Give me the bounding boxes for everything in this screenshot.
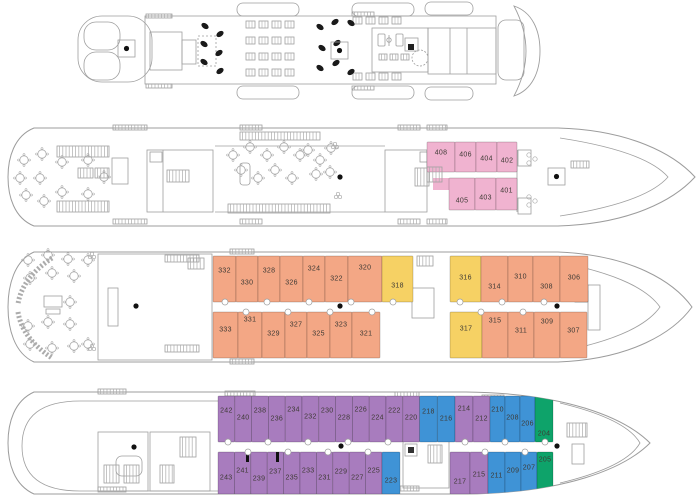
cabin-number: 329 (267, 331, 280, 338)
cabin-area[interactable] (508, 312, 534, 358)
structure (379, 17, 388, 24)
structure (392, 73, 401, 80)
structure (353, 17, 362, 24)
cabin-number: 401 (500, 188, 513, 195)
chair-icon (92, 159, 94, 161)
corridor-door-bump (522, 449, 528, 455)
chair-icon (314, 159, 316, 161)
outline-path (18, 258, 52, 304)
chair-icon (266, 159, 268, 161)
table-icon (229, 151, 237, 159)
cabin-number: 309 (541, 319, 554, 326)
cabin-number: 212 (475, 416, 488, 423)
chair-icon (42, 254, 44, 256)
cabin-number: 230 (321, 408, 334, 415)
chair-icon (271, 154, 273, 156)
cabin[interactable]: 404 (476, 142, 497, 172)
cabin-area[interactable] (258, 256, 280, 302)
structure (237, 3, 299, 16)
chair-icon (56, 347, 58, 349)
cabin[interactable]: 225 (366, 452, 382, 494)
cabin[interactable]: 212 (473, 396, 490, 442)
corridor-door-bump (457, 299, 463, 305)
table-icon (312, 170, 320, 178)
corridor-door-bump (327, 309, 333, 315)
marker (276, 452, 279, 462)
cabin[interactable]: 315 (482, 312, 508, 358)
corridor-door-bump (305, 439, 311, 445)
cabin[interactable]: 330 (236, 256, 258, 302)
chair-icon (25, 199, 27, 201)
cabin[interactable]: 309 (534, 312, 560, 358)
elevator-dot (337, 303, 342, 308)
table-icon (24, 256, 32, 264)
chair-icon (61, 186, 63, 188)
structure (237, 86, 299, 99)
cabin-number: 238 (254, 408, 267, 415)
chair-icon (319, 154, 321, 156)
sunshade-icon (199, 40, 209, 49)
chair-icon (82, 343, 84, 345)
chair-icon (51, 277, 53, 279)
cabin[interactable]: 217 (450, 452, 470, 494)
cabin-block-300s: 3323303283263243223203183163143103083063… (213, 256, 588, 358)
cabin-number: 206 (521, 421, 534, 428)
chair-icon (23, 154, 25, 156)
table-icon (38, 150, 46, 158)
planter-icon (412, 50, 428, 66)
cabin[interactable]: 226 (352, 396, 369, 442)
cabin[interactable]: 308 (533, 256, 560, 302)
cabin-number: 218 (422, 409, 435, 416)
cabin-area[interactable] (316, 452, 332, 494)
chair-icon (237, 154, 239, 156)
chair-icon (56, 161, 58, 163)
cabin-area[interactable] (382, 452, 400, 494)
chair-icon (87, 164, 89, 166)
table-icon (296, 151, 304, 159)
cabin[interactable]: 218 (420, 396, 438, 442)
structure (285, 53, 294, 60)
deck-plan-canvas: 408406404402405403401 332330328326324322… (0, 0, 700, 496)
chair-icon (296, 177, 298, 179)
chair-icon (283, 141, 285, 143)
cabin-number: 211 (490, 473, 502, 480)
corridor-door-bump (306, 299, 312, 305)
cabin-number: 207 (523, 465, 536, 472)
cabin-area[interactable] (450, 452, 470, 494)
corridor-door-bump (390, 299, 396, 305)
cabin[interactable]: 236 (268, 396, 285, 442)
chair-icon (329, 176, 331, 178)
chair-icon (73, 280, 75, 282)
cabin[interactable]: 327 (285, 312, 307, 358)
cabin[interactable]: 306 (560, 256, 588, 302)
cabin-area[interactable] (213, 312, 238, 358)
cabin-number: 317 (460, 326, 473, 333)
chair-icon (330, 152, 332, 154)
cabin-area[interactable] (251, 452, 267, 494)
table-icon (288, 174, 296, 182)
chair-icon (41, 158, 43, 160)
cabin[interactable]: 227 (349, 452, 365, 494)
seat-icon (533, 199, 537, 203)
cabin-area[interactable] (560, 312, 587, 358)
cabin[interactable]: 329 (262, 312, 285, 358)
cabin-area[interactable] (285, 396, 302, 442)
cabin-area[interactable] (533, 256, 560, 302)
cabin-number: 226 (355, 407, 368, 414)
chair-icon (29, 272, 31, 274)
chair-icon (307, 144, 309, 146)
cabin-area[interactable] (455, 396, 473, 442)
cabin-number: 233 (302, 468, 315, 475)
structure (246, 21, 255, 28)
cabin-area[interactable] (420, 396, 438, 442)
sunshade-icon (330, 18, 340, 27)
chair-icon (262, 177, 264, 179)
cabin-area[interactable] (427, 142, 455, 172)
structure (246, 69, 255, 76)
corridor-door-bump (369, 309, 375, 315)
cabin-number: 324 (308, 266, 321, 273)
chair-icon (27, 320, 29, 322)
cabin[interactable]: 234 (285, 396, 302, 442)
table-icon (48, 269, 56, 277)
chair-icon (103, 181, 105, 183)
cabin[interactable]: 307 (560, 312, 587, 358)
table-icon (66, 320, 74, 328)
chair-icon (320, 173, 322, 175)
cabin-number: 242 (220, 408, 233, 415)
cabin[interactable]: 231 (316, 452, 332, 494)
cabin-area[interactable] (303, 256, 325, 302)
cabin[interactable]: 402 (497, 142, 517, 172)
sunshade-icon (317, 44, 327, 53)
chair-icon (74, 323, 76, 325)
cabin-block-400s: 408406404402405403401 (427, 142, 517, 210)
cabin[interactable]: 216 (437, 396, 455, 442)
cabin[interactable]: 326 (280, 256, 303, 302)
chair-icon (56, 191, 58, 193)
chair-icon (73, 340, 75, 342)
chair-icon (279, 169, 281, 171)
chair-icon (74, 301, 76, 303)
cabin[interactable]: 320 (348, 256, 382, 302)
cabin[interactable]: 311 (508, 312, 534, 358)
chair-icon (24, 177, 26, 179)
cabin[interactable]: 209 (505, 452, 521, 494)
table-icon (326, 168, 334, 176)
structure (112, 158, 128, 184)
chair-icon (266, 149, 268, 151)
deck-400s-furniture (14, 125, 668, 224)
cabin[interactable]: 237 (267, 452, 283, 494)
cabin[interactable]: 238 (252, 396, 269, 442)
sunshade-icon (315, 64, 325, 73)
chair-icon (87, 198, 89, 200)
cabin-area[interactable] (319, 396, 336, 442)
cabin[interactable]: 233 (300, 452, 316, 494)
cabin[interactable]: 314 (481, 256, 508, 302)
structure (147, 150, 213, 212)
chair-icon (78, 345, 80, 347)
structure (113, 219, 147, 224)
structure (165, 345, 199, 352)
cabin-area[interactable] (330, 312, 352, 358)
structure (272, 69, 281, 76)
table-icon (237, 166, 245, 174)
cabin-area[interactable] (348, 256, 382, 302)
chair-icon (232, 159, 234, 161)
table-icon (48, 344, 56, 352)
cabin[interactable]: 208 (505, 396, 520, 442)
sunshade-icon (214, 49, 224, 58)
cabin-area[interactable] (449, 178, 475, 210)
table-icon (70, 342, 78, 350)
structure (259, 53, 268, 60)
cabin[interactable]: 331 (238, 312, 262, 358)
cabin-area[interactable] (481, 256, 508, 302)
structure (246, 37, 255, 44)
chair-icon (87, 188, 89, 190)
chair-icon (87, 254, 89, 256)
structure (108, 288, 118, 326)
chair-icon (324, 159, 326, 161)
cabin-number: 223 (385, 478, 398, 485)
chair-icon (78, 275, 80, 277)
cabin-number: 322 (330, 276, 343, 283)
cabin[interactable]: 224 (369, 396, 386, 442)
chair-icon (319, 164, 321, 166)
chair-icon (29, 348, 31, 350)
corridor-door-bump (502, 439, 508, 445)
cabin-area[interactable] (520, 396, 535, 442)
cabin[interactable]: 239 (251, 452, 267, 494)
cabin[interactable]: 228 (336, 396, 353, 442)
cabin[interactable]: 207 (521, 452, 537, 494)
seat-icon (527, 161, 531, 165)
chair-icon (62, 258, 64, 260)
cabin[interactable]: 405 (449, 178, 475, 210)
cabin[interactable]: 242 (218, 396, 235, 442)
cabin[interactable]: 406 (455, 142, 476, 172)
structure (98, 432, 148, 491)
corridor-door-bump (345, 439, 351, 445)
chair-icon (24, 277, 26, 279)
chair-icon (304, 154, 306, 156)
cabin-number: 235 (286, 475, 299, 482)
sunshade-icon (331, 59, 341, 68)
cabin[interactable]: 403 (475, 178, 496, 210)
cabin[interactable]: 317 (450, 312, 482, 358)
cabin-number: 330 (241, 280, 254, 287)
table-icon (58, 188, 66, 196)
cabin[interactable]: 316 (450, 256, 481, 302)
chair-icon (257, 182, 259, 184)
cabin[interactable]: 321 (352, 312, 380, 358)
cabin[interactable]: 310 (508, 256, 533, 302)
chair-icon (48, 200, 50, 202)
cabin-number: 237 (269, 469, 282, 476)
plant-icon (334, 195, 337, 198)
chair-icon (43, 205, 45, 207)
cabin[interactable]: 322 (325, 256, 348, 302)
cabin[interactable]: 232 (302, 396, 319, 442)
structure (412, 288, 434, 318)
cabin[interactable]: 243 (218, 452, 234, 494)
plant-icon (338, 195, 341, 198)
cabin-number: 327 (290, 322, 303, 329)
cabin[interactable]: 318 (382, 256, 413, 302)
cabin-area[interactable] (386, 396, 403, 442)
chair-icon (92, 259, 94, 261)
cabin[interactable]: 325 (307, 312, 330, 358)
cabin-area[interactable] (450, 312, 482, 358)
chair-icon (68, 345, 70, 347)
cabin-area[interactable] (218, 452, 234, 494)
cabin[interactable]: 215 (470, 452, 488, 494)
structure (259, 69, 268, 76)
chair-icon (82, 193, 84, 195)
elevator-dot (338, 443, 343, 448)
chair-icon (307, 154, 309, 156)
chair-icon (92, 193, 94, 195)
elevator-dot (337, 174, 342, 179)
chair-icon (249, 151, 251, 153)
marker (433, 178, 449, 190)
cabin-number: 216 (440, 416, 453, 423)
cabin[interactable]: 332 (213, 256, 236, 302)
cabin[interactable]: 223 (382, 452, 400, 494)
chair-icon (299, 149, 301, 151)
bow-inner-line (560, 403, 640, 483)
cabin[interactable]: 220 (403, 396, 420, 442)
cabin[interactable]: 211 (488, 452, 505, 494)
cabin-number: 204 (538, 431, 551, 438)
cabin[interactable]: 240 (235, 396, 252, 442)
chair-icon (18, 159, 20, 161)
table-icon (271, 166, 279, 174)
seat-icon (527, 153, 531, 157)
chair-icon (69, 306, 71, 308)
cabin[interactable]: 328 (258, 256, 280, 302)
cabin-area[interactable] (352, 396, 369, 442)
structure (396, 34, 403, 46)
chair-icon (42, 321, 44, 323)
chair-icon (324, 171, 326, 173)
cabin-area[interactable] (285, 312, 307, 358)
cabin-area[interactable] (521, 452, 537, 494)
cabin[interactable]: 230 (319, 396, 336, 442)
cabin[interactable]: 214 (455, 396, 473, 442)
cabin-number: 214 (458, 406, 471, 413)
corridor-door-bump (462, 439, 468, 445)
cabin-number: 208 (506, 415, 519, 422)
cabin[interactable]: 408 (427, 142, 455, 172)
cabin-area[interactable] (252, 396, 269, 442)
cabin-area[interactable] (490, 396, 505, 442)
cabin[interactable]: 324 (303, 256, 325, 302)
table-icon (70, 272, 78, 280)
chair-icon (34, 177, 36, 179)
table-icon (280, 143, 288, 151)
chair-icon (36, 153, 38, 155)
ship-deck-plans: 408406404402405403401 332330328326324322… (0, 0, 700, 496)
chair-icon (30, 194, 32, 196)
structure (567, 423, 587, 437)
structure (379, 73, 388, 80)
chair-icon (66, 161, 68, 163)
chair-icon (25, 189, 27, 191)
cabin-number: 243 (220, 475, 233, 482)
plant-icon (92, 347, 95, 350)
cabin[interactable]: 222 (386, 396, 403, 442)
corridor-door-bump (365, 449, 371, 455)
chair-icon (24, 343, 26, 345)
cabin-number: 310 (514, 274, 527, 281)
cabin[interactable]: 235 (284, 452, 300, 494)
structure (44, 296, 62, 307)
cabin[interactable]: 210 (490, 396, 505, 442)
cabin[interactable]: 333 (213, 312, 238, 358)
chair-icon (312, 149, 314, 151)
cabin-number: 220 (405, 415, 418, 422)
chair-icon (286, 177, 288, 179)
chair-icon (235, 169, 237, 171)
chair-icon (52, 321, 54, 323)
cabin-number: 408 (435, 150, 448, 157)
structure (84, 22, 120, 50)
cabin[interactable]: 204 (535, 396, 553, 442)
marker (408, 44, 414, 50)
chair-icon (302, 149, 304, 151)
chair-icon (44, 177, 46, 179)
structure (246, 53, 255, 60)
chair-icon (64, 301, 66, 303)
chair-icon (39, 182, 41, 184)
cabin-area[interactable] (284, 452, 300, 494)
elevator-dot (124, 46, 129, 51)
outline-path (560, 138, 668, 216)
cabin[interactable]: 401 (496, 178, 517, 210)
structure (46, 309, 60, 314)
cabin-area[interactable] (382, 256, 413, 302)
chair-icon (87, 338, 89, 340)
seat-icon (527, 195, 531, 199)
chair-icon (261, 154, 263, 156)
cabin-area[interactable] (213, 256, 236, 302)
chair-icon (269, 169, 271, 171)
cabin[interactable]: 206 (520, 396, 535, 442)
sunshade-icon (346, 68, 356, 77)
table-icon (40, 197, 48, 205)
outline-path (22, 401, 235, 491)
sunshade-icon (199, 58, 209, 67)
cabin[interactable]: 229 (333, 452, 349, 494)
corridor-door-bump (385, 439, 391, 445)
cabin-number: 321 (360, 331, 373, 338)
deck-strip-300s: 3323303283263243223203183163143103083063… (8, 249, 692, 364)
cabin-area[interactable] (218, 396, 235, 442)
cabin[interactable]: 323 (330, 312, 352, 358)
structure (518, 198, 531, 214)
structure (379, 54, 387, 60)
cabin-area[interactable] (349, 452, 365, 494)
table-icon (316, 156, 324, 164)
structure (150, 32, 182, 70)
cabin-number: 333 (219, 327, 232, 334)
